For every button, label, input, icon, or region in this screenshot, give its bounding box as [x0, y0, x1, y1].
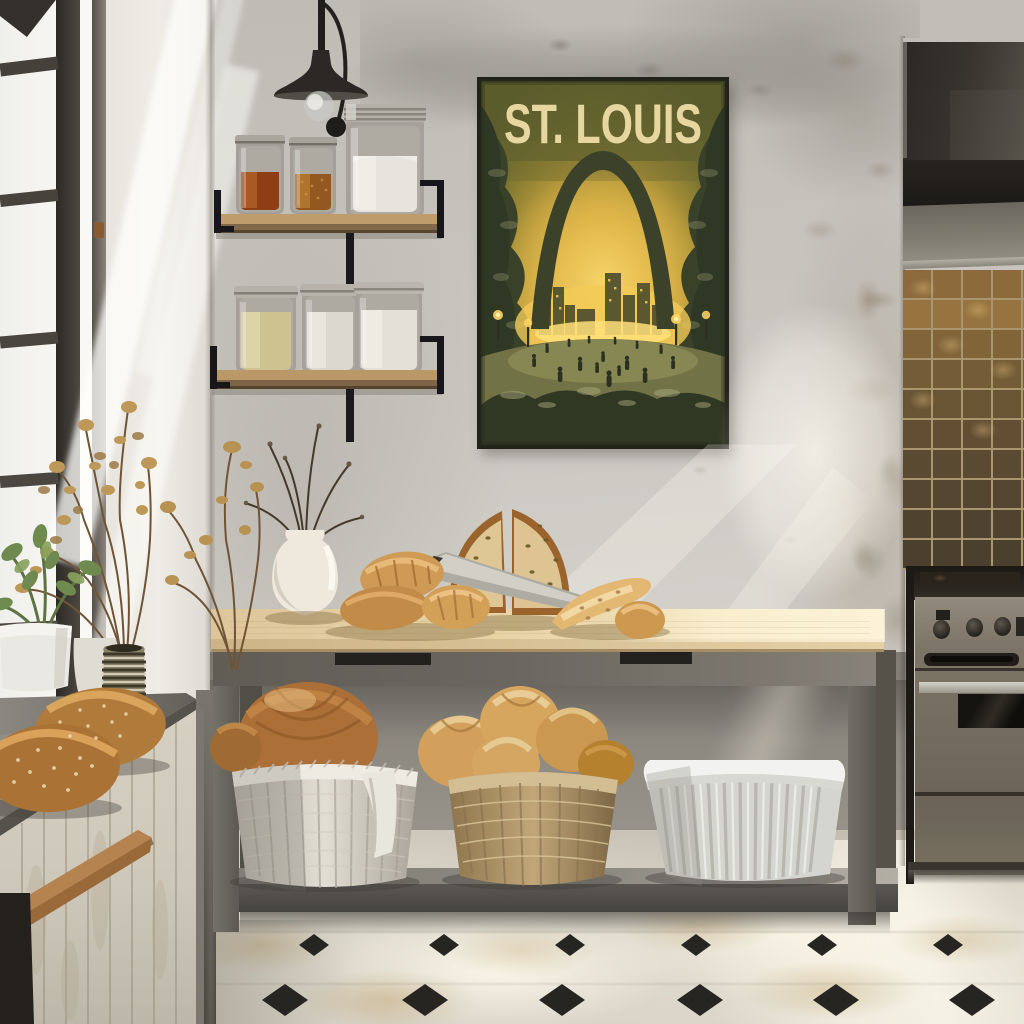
svg-text:ST. LOUIS: ST. LOUIS	[504, 92, 702, 155]
